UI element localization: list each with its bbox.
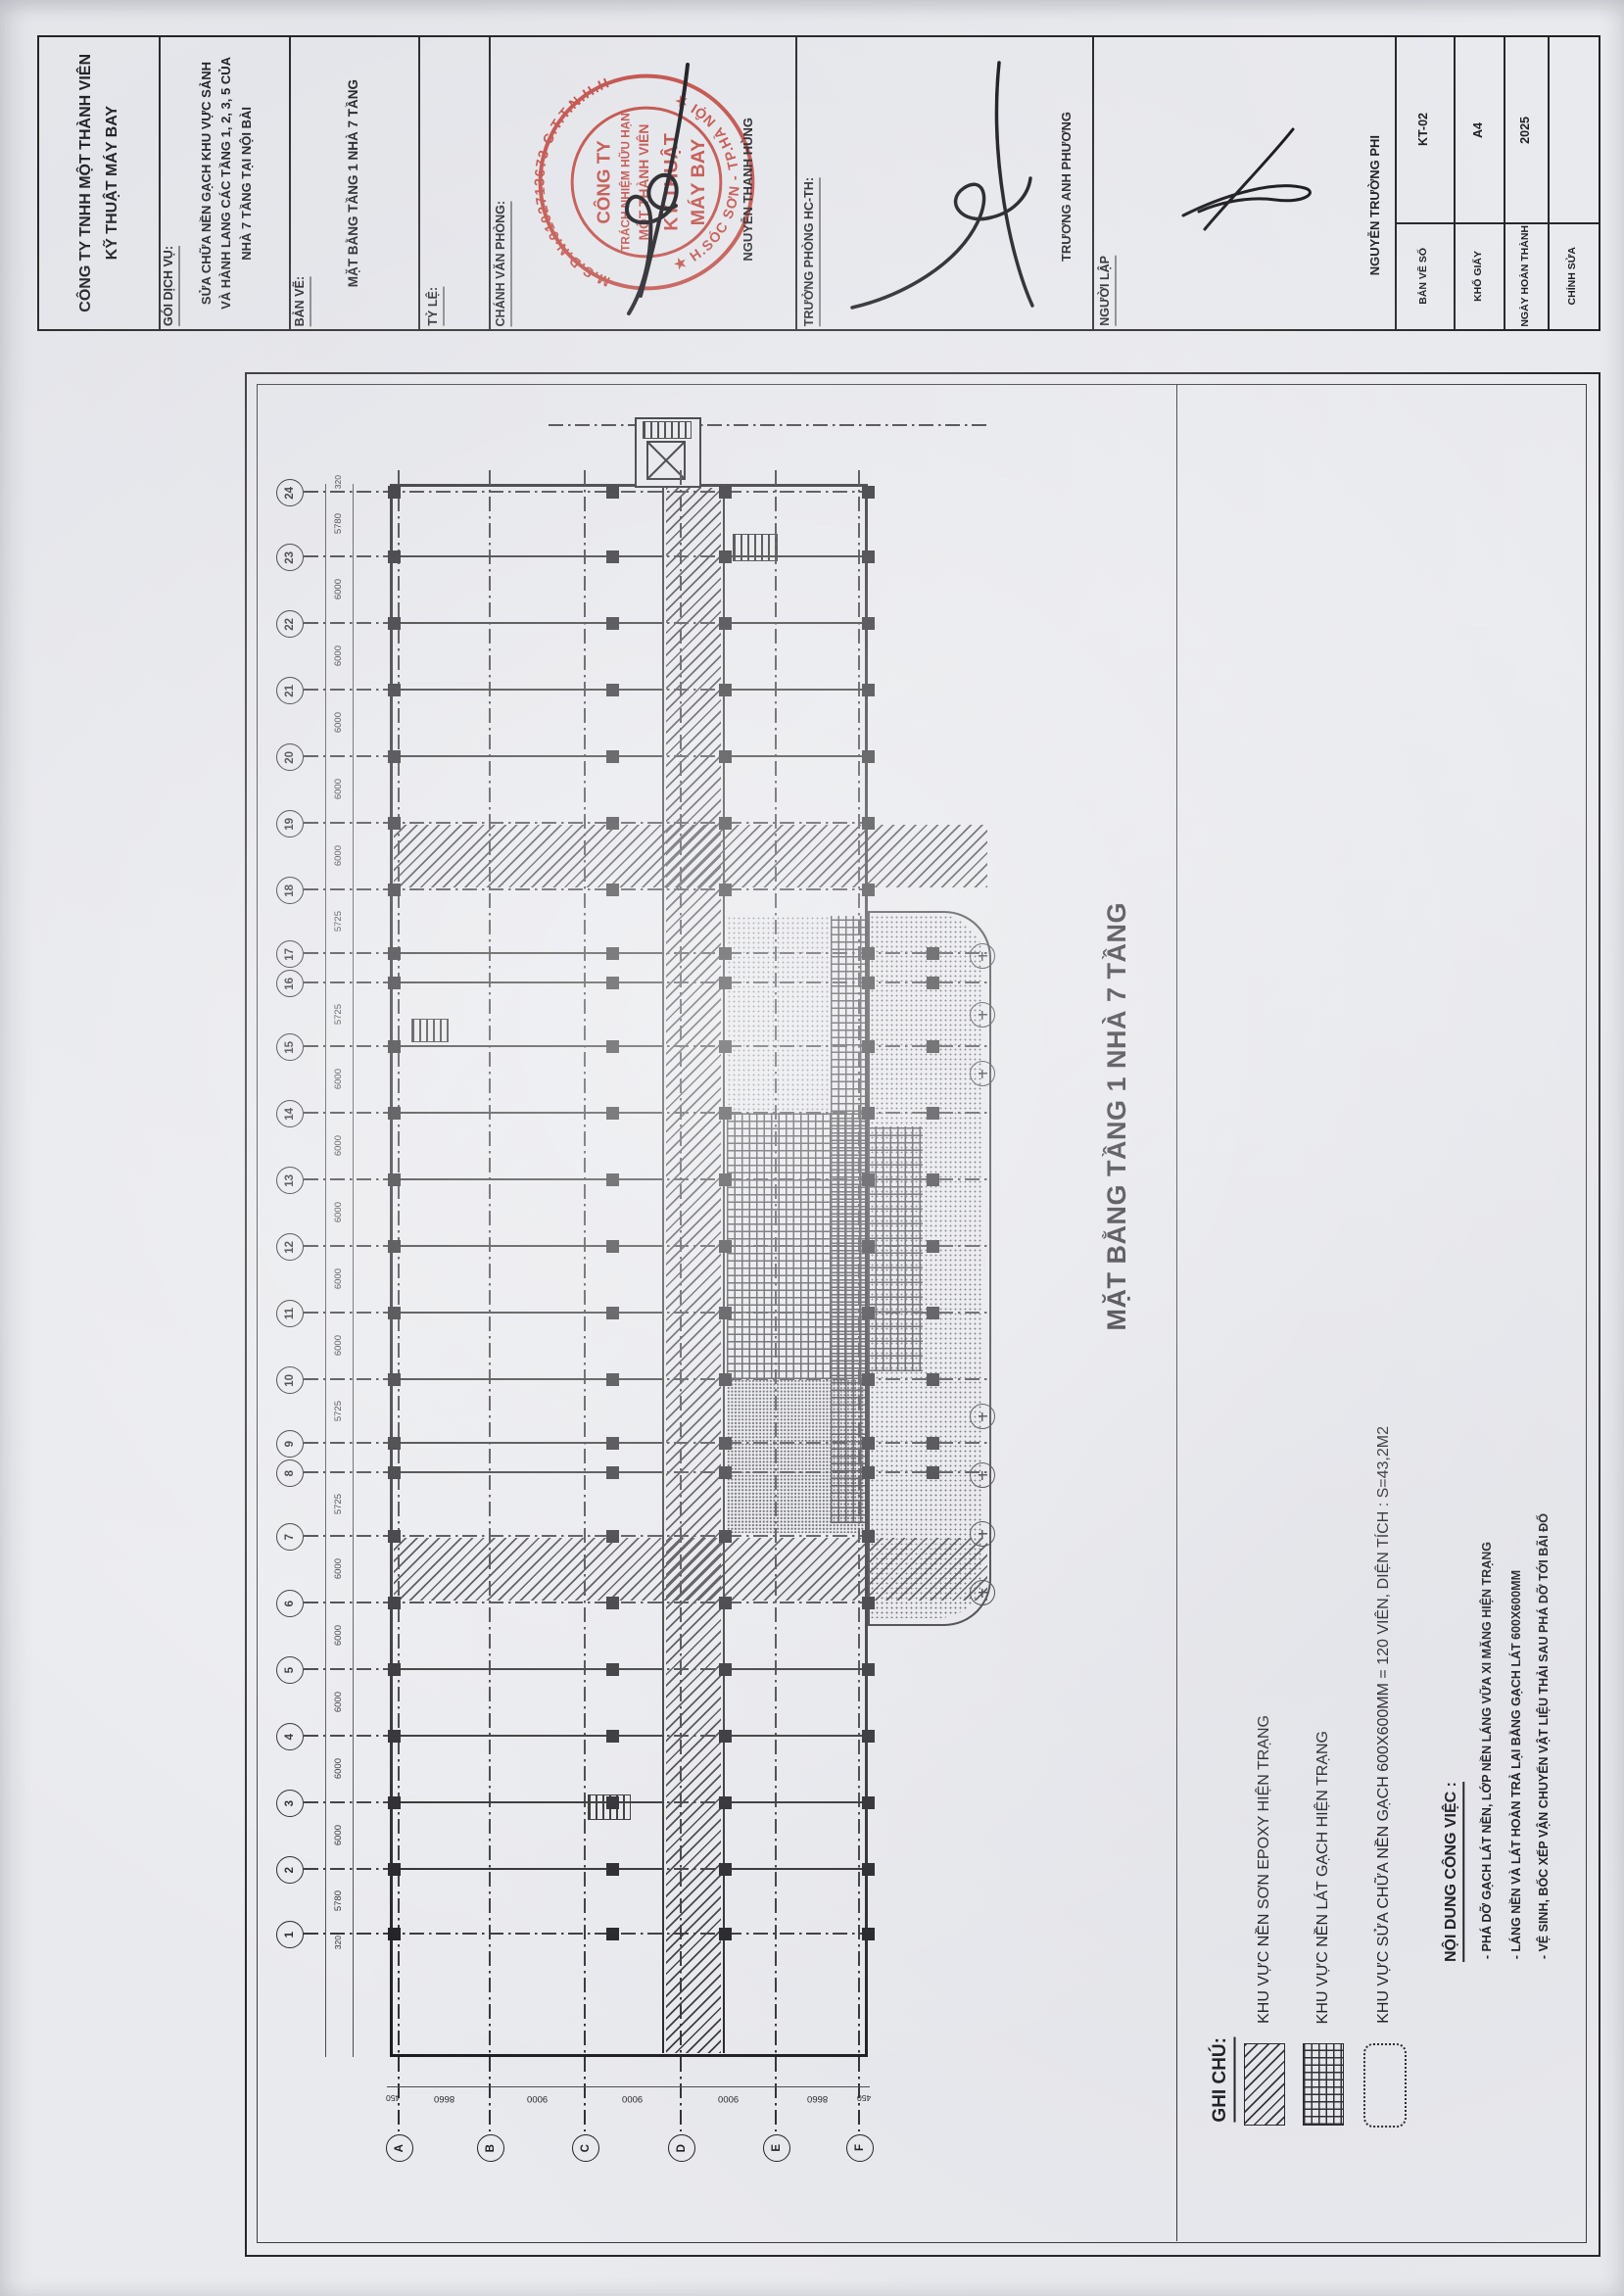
legend-title: GHI CHÚ:: [1211, 2037, 1236, 2123]
row-dimension-text: 6000: [334, 1135, 344, 1156]
stair-comb-mid: [411, 1019, 449, 1042]
room-partition-right: [725, 622, 868, 624]
grid-row-bubble: 5: [276, 1656, 304, 1684]
room-partition-left: [394, 1112, 662, 1114]
row-dimension: 6000: [323, 1311, 355, 1381]
row-dimension: 6000: [323, 754, 355, 825]
grid-col-bubble: B: [477, 2134, 504, 2162]
structural-column: [606, 1730, 619, 1743]
meta-label-cell: CHỈNH SỬA: [1548, 222, 1599, 329]
structural-column: [719, 1173, 732, 1186]
row-dimension-text: 6000: [334, 579, 344, 599]
structural-column: [862, 1437, 875, 1450]
structural-column: [388, 486, 401, 499]
grid-row-bubble: 21: [276, 677, 304, 704]
structural-column: [719, 1040, 732, 1053]
structural-column: [719, 1307, 732, 1319]
structural-column: [862, 750, 875, 763]
structural-column: [388, 1307, 401, 1319]
canopy-column: [927, 1240, 939, 1253]
canopy-column: [927, 1173, 939, 1186]
legend-item-label: KHU VỰC NỀN SƠN EPOXY HIỆN TRẠNG: [1256, 1715, 1272, 2024]
title-block: CÔNG TY TNHH MỘT THÀNH VIÊN KỸ THUẬT MÁY…: [37, 35, 1600, 331]
structural-column: [606, 1107, 619, 1120]
drawing-label: BẢN VẼ:: [294, 276, 311, 326]
dept-head-name: TRƯƠNG ANH PHƯƠNG: [1060, 112, 1074, 262]
meta-label-cell: NGÀY HOÀN THÀNH: [1504, 222, 1548, 329]
structural-column: [719, 1466, 732, 1479]
grid-row-label: 19: [284, 818, 296, 831]
grid-col-label: C: [580, 2144, 592, 2152]
room-partition-left: [394, 952, 662, 954]
grid-row-bubble: 11: [276, 1300, 304, 1327]
structural-column: [606, 1663, 619, 1676]
structural-column: [862, 684, 875, 696]
grid-row-bubble: 6: [276, 1590, 304, 1617]
grid-col-label: A: [394, 2144, 406, 2152]
structural-column: [606, 947, 619, 960]
grid-row-label: 10: [284, 1374, 296, 1387]
col-dimension-text: 9000: [718, 2093, 739, 2104]
structural-column: [862, 1107, 875, 1120]
grid-row-bubble: 8: [276, 1459, 304, 1487]
canopy-column: [927, 1437, 939, 1450]
structural-column: [719, 817, 732, 830]
company-cell: CÔNG TY TNHH MỘT THÀNH VIÊN KỸ THUẬT MÁY…: [39, 37, 159, 329]
grid-row-bubble: 20: [276, 743, 304, 771]
tree-symbol: [970, 1521, 995, 1547]
structural-column: [606, 1863, 619, 1876]
room-partition-left: [394, 1045, 662, 1047]
grid-row-bubble: 22: [276, 610, 304, 638]
structural-column: [719, 1730, 732, 1743]
row-dimension: 6000: [323, 1601, 355, 1671]
structural-column: [862, 617, 875, 630]
structural-column: [862, 947, 875, 960]
row-dimension-text: 6000: [334, 1758, 344, 1779]
drawing-name: MẶT BẰNG TẦNG 1 NHÀ 7 TẦNG: [347, 79, 361, 287]
structural-column: [388, 1663, 401, 1676]
structural-column: [719, 1373, 732, 1386]
grid-row-bubble: 12: [276, 1233, 304, 1261]
grid-row-bubble: 24: [276, 479, 304, 506]
structural-column: [606, 1928, 619, 1940]
row-end-dimension: 320: [323, 447, 355, 517]
company-name-line2: KỸ THUẬT MÁY BAY: [104, 106, 120, 260]
sheet-number-label: BẢN VẼ SỐ: [1418, 248, 1429, 305]
service-package-cell: SỬA CHỮA NỀN GẠCH KHU VỰC SẢNH VÀ HÀNH L…: [165, 37, 289, 329]
row-dimension-text: 6000: [334, 1335, 344, 1356]
col-dimension: 9000: [713, 2063, 744, 2133]
structural-column: [719, 1240, 732, 1253]
dept-head-label: TRƯỞNG PHÒNG HC-TH:: [803, 177, 821, 326]
structural-column: [388, 884, 401, 896]
corridor-wall-right: [723, 484, 725, 2053]
elevator-machine-comb: [643, 421, 692, 439]
structural-column: [388, 1928, 401, 1940]
row-dimension: 6000: [323, 1111, 355, 1181]
grid-col-label: F: [854, 2144, 866, 2151]
meta-value-cell: [1548, 37, 1599, 222]
structural-column: [862, 1597, 875, 1609]
structural-column: [606, 1240, 619, 1253]
plan-title: MẶT BẰNG TẦNG 1 NHÀ 7 TẦNG: [1103, 902, 1131, 1331]
grid-row-label: 13: [284, 1174, 296, 1187]
meta-label-cell: BẢN VẼ SỐ: [1395, 222, 1454, 329]
grid-row-label: 8: [284, 1470, 296, 1476]
grid-col-bubble: D: [668, 2134, 695, 2162]
grid-col-line: [398, 470, 400, 2131]
structural-column: [862, 1796, 875, 1809]
col-end-dimension: 450: [848, 2063, 880, 2133]
col-dimension-text: 8660: [434, 2093, 454, 2104]
room-partition-left: [394, 622, 662, 624]
structural-column: [719, 750, 732, 763]
structural-column: [719, 1796, 732, 1809]
room-partition-right: [725, 555, 868, 557]
row-end-dimension-text: 320: [334, 475, 343, 489]
row-dimension: 6000: [323, 1800, 355, 1871]
grid-col-label: B: [485, 2144, 497, 2152]
structural-column: [719, 977, 732, 989]
grid-col-bubble: C: [572, 2134, 599, 2162]
grid-row-label: 4: [284, 1734, 296, 1740]
structural-column: [862, 486, 875, 499]
revision-label: CHỈNH SỬA: [1567, 247, 1578, 305]
structural-column: [388, 750, 401, 763]
room-partition-left: [394, 1312, 662, 1314]
row-dimension: 6000: [323, 1244, 355, 1315]
structural-column: [388, 1530, 401, 1543]
grid-row-label: 16: [284, 978, 296, 990]
service-package-line2: VÀ HÀNH LANG CÁC TẦNG 1, 2, 3, 5 CỦA: [219, 57, 233, 310]
structural-column: [862, 1663, 875, 1676]
room-partition-left: [394, 555, 662, 557]
structural-column: [388, 617, 401, 630]
row-dimension-text: 6000: [334, 1202, 344, 1222]
completion-year-value: 2025: [1519, 117, 1533, 144]
room-partition-left: [394, 1868, 662, 1870]
grid-row-label: 17: [284, 948, 296, 961]
grid-col-line: [775, 470, 777, 2131]
grid-row-label: 7: [284, 1534, 296, 1540]
structural-column: [719, 1107, 732, 1120]
row-dimension: 6000: [323, 1667, 355, 1738]
author-label: NGƯỜI LẬP: [1099, 256, 1117, 326]
service-package-line3: NHÀ 7 TẦNG TẠI NỘI BÀI: [240, 107, 254, 261]
structural-column: [388, 947, 401, 960]
row-dimension-text: 6000: [334, 1692, 344, 1712]
row-dimension: 6000: [323, 688, 355, 758]
notes-title: NỘI DUNG CÔNG VIỆC :: [1443, 1782, 1464, 1962]
structural-column: [719, 947, 732, 960]
structural-column: [606, 1437, 619, 1450]
row-dimension-text: 5725: [334, 1494, 344, 1514]
room-partition-left: [394, 1668, 662, 1670]
grid-row-bubble: 9: [276, 1430, 304, 1458]
meta-label-cell: KHỔ GIẤY: [1454, 222, 1504, 329]
row-dimension-text: 6000: [334, 712, 344, 733]
building-outer-wall: [390, 484, 868, 2057]
grid-row-label: 5: [284, 1667, 296, 1673]
legend-item-label: KHU VỰC SỬA CHỮA NỀN GẠCH 600X600MM = 12…: [1375, 1426, 1392, 2024]
paper-size-value: A4: [1472, 122, 1486, 138]
service-package-line1: SỬA CHỮA NỀN GẠCH KHU VỰC SẢNH: [200, 62, 214, 305]
svg-text:MỘT THÀNH VIÊN: MỘT THÀNH VIÊN: [635, 124, 651, 241]
legend-swatch-cloud: [1363, 2043, 1407, 2128]
row-dimension-text: 6000: [334, 1268, 344, 1289]
title-block-divider: [489, 37, 491, 329]
row-dimension-text: 6000: [334, 1625, 344, 1646]
canopy-column: [927, 1373, 939, 1386]
structural-column: [719, 1437, 732, 1450]
grid-row-label: 3: [284, 1800, 296, 1806]
svg-text:TRÁCH NHIỆM HỮU HẠN: TRÁCH NHIỆM HỮU HẠN: [618, 113, 632, 252]
office-chief-name: NGUYỄN THANH HÙNG: [741, 118, 755, 262]
structural-column: [388, 1373, 401, 1386]
col-end-dimension: 450: [377, 2063, 408, 2133]
room-partition-left: [394, 1178, 662, 1180]
row-dimension: 6000: [323, 821, 355, 891]
room-partition-left: [394, 755, 662, 757]
grid-row-label: 15: [284, 1041, 296, 1054]
structural-column: [719, 884, 732, 896]
structural-column: [388, 1863, 401, 1876]
grid-col-line: [489, 470, 491, 2131]
structural-column: [388, 977, 401, 989]
meta-value-cell: A4: [1454, 37, 1504, 222]
col-dimension-text: 8660: [807, 2093, 828, 2104]
scanned-drawing-sheet: CÔNG TY TNHH MỘT THÀNH VIÊN KỸ THUẬT MÁY…: [0, 0, 1624, 2296]
structural-column: [862, 1373, 875, 1386]
completion-year-label: NGÀY HOÀN THÀNH: [1520, 225, 1531, 327]
tree-symbol: [970, 943, 995, 969]
structural-column: [719, 1863, 732, 1876]
row-dimension: 5725: [323, 980, 355, 1050]
room-partition-right: [725, 1868, 868, 1870]
room-partition-right: [725, 1801, 868, 1803]
svg-text:KỸ THUẬT: KỸ THUẬT: [659, 133, 683, 231]
work-note-item: - LÁNG NỀN VÀ LÁT HOÀN TRẢ LẠI BẰNG GẠCH…: [1510, 1570, 1524, 1959]
company-stamp: M.S.D.N:0102713673-C.T.T.N.H.H ★ H.SÓC S…: [515, 51, 778, 313]
structural-column: [862, 1173, 875, 1186]
structural-column: [606, 486, 619, 499]
col-dimension: 9000: [522, 2063, 553, 2133]
structural-column: [862, 977, 875, 989]
row-dimension-text: 5725: [334, 1401, 344, 1421]
tree-symbol: [970, 1580, 995, 1605]
grid-col-line: [858, 470, 860, 2131]
svg-text:MÁY BAY: MÁY BAY: [687, 139, 709, 226]
structural-column: [388, 1796, 401, 1809]
work-note-item: - PHÁ DỠ GẠCH LÁT NỀN, LỚP NỀN LÁNG VỮA …: [1481, 1542, 1495, 1959]
structural-column: [388, 1040, 401, 1053]
title-block-divider: [795, 37, 797, 329]
structural-column: [719, 550, 732, 563]
row-dimension: 5725: [323, 886, 355, 957]
service-package-label: GÓI DỊCH VỤ:: [163, 246, 180, 326]
grid-row-label: 21: [284, 685, 296, 697]
grid-col-bubble: F: [846, 2134, 874, 2162]
company-name-line1: CÔNG TY TNHH MỘT THÀNH VIÊN: [77, 54, 94, 312]
room-partition-left: [394, 1735, 662, 1737]
grid-col-line: [680, 470, 682, 2131]
row-dimension: 5725: [323, 1469, 355, 1540]
work-note-item: - VỆ SINH, BỐC XẾP VẬN CHUYỂN VẬT LIỆU T…: [1538, 1513, 1552, 1959]
row-dimension-text: 6000: [334, 646, 344, 666]
dept-head-signature: [852, 63, 1032, 308]
canopy-column: [927, 1040, 939, 1053]
room-partition-right: [725, 689, 868, 691]
room-partition-left: [394, 981, 662, 983]
structural-column: [719, 1928, 732, 1940]
legend-swatch-hatch-grid: [1303, 2043, 1344, 2126]
structural-column: [862, 1730, 875, 1743]
row-dimension-text: 6000: [334, 1069, 344, 1089]
structural-column: [388, 1240, 401, 1253]
grid-row-label: 12: [284, 1241, 296, 1254]
structural-column: [862, 550, 875, 563]
structural-column: [606, 750, 619, 763]
grid-row-bubble: 17: [276, 940, 304, 968]
structural-column: [719, 1597, 732, 1609]
room-partition-left: [394, 1471, 662, 1473]
room-partition-right: [725, 1668, 868, 1670]
room-partition-left: [394, 1378, 662, 1380]
stamp-center-text: CÔNG TY TRÁCH NHIỆM HỮU HẠN MỘT THÀNH VI…: [594, 113, 710, 252]
row-dimension: 5725: [323, 1376, 355, 1447]
site-line: [549, 424, 989, 426]
title-block-divider: [159, 37, 161, 329]
grid-row-bubble: 1: [276, 1921, 304, 1948]
structural-column: [606, 1530, 619, 1543]
structural-column: [719, 1530, 732, 1543]
svg-text:CÔNG TY: CÔNG TY: [594, 140, 614, 224]
structural-column: [862, 884, 875, 896]
structural-column: [606, 684, 619, 696]
grid-row-bubble: 13: [276, 1167, 304, 1194]
grid-row-label: 20: [284, 751, 296, 764]
grid-row-bubble: 14: [276, 1100, 304, 1127]
structural-column: [719, 617, 732, 630]
tree-symbol: [970, 1061, 995, 1086]
row-dimension-text: 5725: [334, 1004, 344, 1025]
structural-column: [606, 977, 619, 989]
row-dimension: 6000: [323, 554, 355, 625]
structural-column: [388, 684, 401, 696]
structural-column: [606, 1796, 619, 1809]
row-dimension: 6000: [323, 1734, 355, 1804]
tree-symbol: [970, 1462, 995, 1488]
row-dimension-text: 6000: [334, 845, 344, 866]
grid-row-label: 23: [284, 551, 296, 564]
row-dimension: 6000: [323, 621, 355, 692]
grid-row-label: 9: [284, 1441, 296, 1447]
structural-column: [862, 1466, 875, 1479]
office-chief-label: CHÁNH VĂN PHÒNG:: [495, 201, 512, 326]
corridor-wall-left: [662, 484, 664, 2053]
author-name: NGUYỄN TRƯỜNG PHI: [1368, 135, 1382, 275]
grid-row-bubble: 15: [276, 1033, 304, 1061]
structural-column: [719, 486, 732, 499]
structural-column: [606, 817, 619, 830]
structural-column: [862, 1307, 875, 1319]
grid-col-label: D: [676, 2144, 688, 2152]
grid-col-bubble: E: [763, 2134, 790, 2162]
col-dimension-text: 9000: [527, 2093, 548, 2104]
room-partition-right: [725, 755, 868, 757]
col-dimension: 8660: [802, 2063, 834, 2133]
canopy-column: [927, 1107, 939, 1120]
structural-column: [862, 1240, 875, 1253]
structural-column: [862, 1928, 875, 1940]
lobby-tiled-extension: [868, 1126, 923, 1371]
grid-row-bubble: 10: [276, 1366, 304, 1394]
grid-col-line: [584, 470, 586, 2131]
structural-column: [388, 550, 401, 563]
canopy-column: [927, 977, 939, 989]
row-end-dimension-text: 320: [334, 1936, 343, 1949]
structural-column: [606, 550, 619, 563]
grid-col-bubble: A: [386, 2134, 413, 2162]
grid-row-label: 24: [284, 487, 296, 500]
structural-column: [606, 1307, 619, 1319]
grid-row-bubble: 16: [276, 970, 304, 997]
structural-column: [606, 884, 619, 896]
col-end-dimension-text: 450: [386, 2093, 400, 2103]
room-partition-right: [725, 1735, 868, 1737]
structural-column: [862, 1863, 875, 1876]
grid-row-label: 2: [284, 1867, 296, 1873]
legend-swatch-hatch-diag: [1244, 2043, 1285, 2126]
room-partition-left: [394, 1801, 662, 1803]
row-dimension-text: 6000: [334, 1558, 344, 1579]
structural-column: [606, 1597, 619, 1609]
row-end-dimension: 320: [323, 1907, 355, 1978]
grid-col-label: E: [771, 2144, 783, 2152]
grid-row-bubble: 2: [276, 1856, 304, 1884]
grid-row-label: 1: [284, 1932, 296, 1937]
meta-value-cell: KT-02: [1395, 37, 1454, 222]
frame-column-divider: [1176, 384, 1177, 2241]
grid-row-bubble: 3: [276, 1790, 304, 1817]
structural-column: [862, 817, 875, 830]
structural-column: [719, 1663, 732, 1676]
canopy-column: [927, 1466, 939, 1479]
grid-row-label: 6: [284, 1601, 296, 1606]
title-block-divider: [1092, 37, 1094, 329]
room-partition-left: [394, 1245, 662, 1247]
structural-column: [606, 1040, 619, 1053]
structural-column: [388, 1173, 401, 1186]
grid-row-bubble: 19: [276, 810, 304, 837]
canopy-column: [927, 947, 939, 960]
structural-column: [388, 1437, 401, 1450]
grid-row-bubble: 18: [276, 877, 304, 904]
row-dimension: 6000: [323, 1044, 355, 1115]
sheet-number-value: KT-02: [1417, 113, 1431, 146]
row-dimension: 6000: [323, 1177, 355, 1248]
row-dimension-text: 6000: [334, 779, 344, 799]
col-dimension: 9000: [617, 2063, 648, 2133]
author-signature: [1183, 129, 1310, 229]
scale-label: TỶ LỆ:: [427, 287, 445, 326]
structural-column: [862, 1530, 875, 1543]
col-dimension-text: 9000: [622, 2093, 643, 2104]
title-block-divider: [418, 37, 420, 329]
structural-column: [606, 1466, 619, 1479]
room-partition-left: [394, 1442, 662, 1444]
